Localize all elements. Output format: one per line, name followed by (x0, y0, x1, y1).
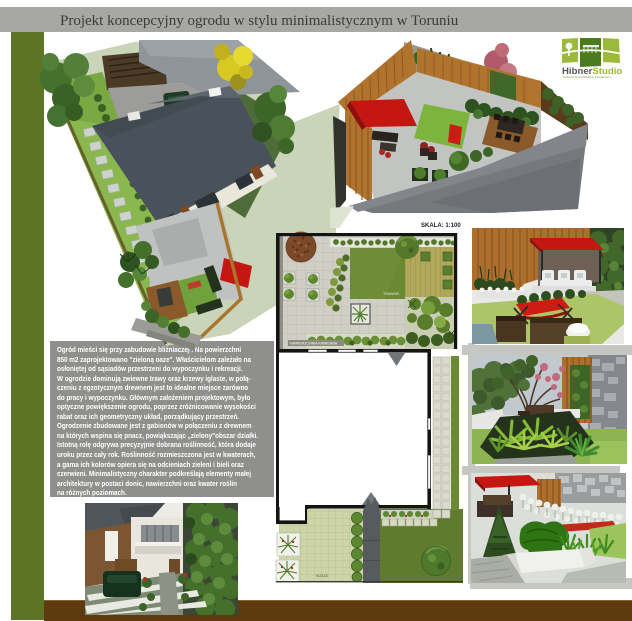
svg-text:TRAWNIK: TRAWNIK (383, 292, 400, 296)
svg-text:NAWIERZCHNIA KAMIENNA: NAWIERZCHNIA KAMIENNA (290, 342, 338, 346)
svg-text:WJAZD: WJAZD (316, 574, 329, 578)
